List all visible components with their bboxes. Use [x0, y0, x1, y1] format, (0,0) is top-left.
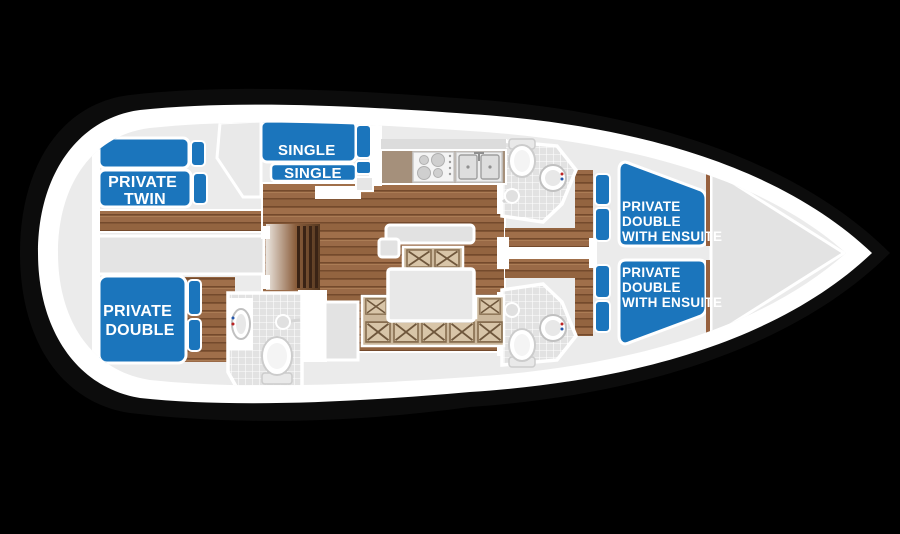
pillow: [188, 280, 201, 315]
pillow: [356, 125, 371, 158]
yacht-floor-plan: PRIVATE TWIN SINGLE SINGLE PRIVATE DOUBL…: [0, 0, 900, 534]
floor-aft-twin-cabin: [99, 210, 263, 232]
cabin-private-double-aft: PRIVATE DOUBLE: [99, 276, 201, 363]
stove-icon: [413, 152, 454, 182]
toilet-icon: [262, 337, 292, 384]
pillow: [191, 141, 205, 166]
toilet-icon: [509, 329, 535, 367]
galley: [381, 139, 506, 184]
pillow: [188, 319, 201, 351]
cabin-singles: SINGLE SINGLE: [261, 121, 373, 191]
nightstand: [356, 177, 373, 191]
aft-corridor: [98, 236, 264, 274]
pillow: [595, 301, 610, 332]
wall-below-singles: [315, 186, 361, 199]
pillow: [193, 173, 207, 204]
galley-upper-cabinet: [381, 139, 506, 150]
double-sink-icon: [456, 152, 502, 182]
saloon-table: [388, 269, 474, 321]
aft-head: [228, 293, 302, 390]
pillow: [595, 208, 610, 241]
saloon-side-seat: [379, 239, 399, 257]
companionway-steps: [261, 224, 320, 290]
pillow: [356, 161, 371, 174]
pillow: [595, 265, 610, 298]
washbasin-icon: [232, 309, 251, 339]
floor-plan-canvas: PRIVATE TWIN SINGLE SINGLE PRIVATE DOUBL…: [0, 0, 900, 534]
aft-cabin-entry: [325, 302, 358, 360]
washbasin-icon: [540, 165, 566, 191]
toilet-icon: [509, 139, 535, 177]
bed: [99, 138, 189, 168]
pillow: [595, 174, 610, 205]
washbasin-icon: [540, 315, 566, 341]
cabin-private-twin: PRIVATE TWIN: [99, 138, 207, 208]
